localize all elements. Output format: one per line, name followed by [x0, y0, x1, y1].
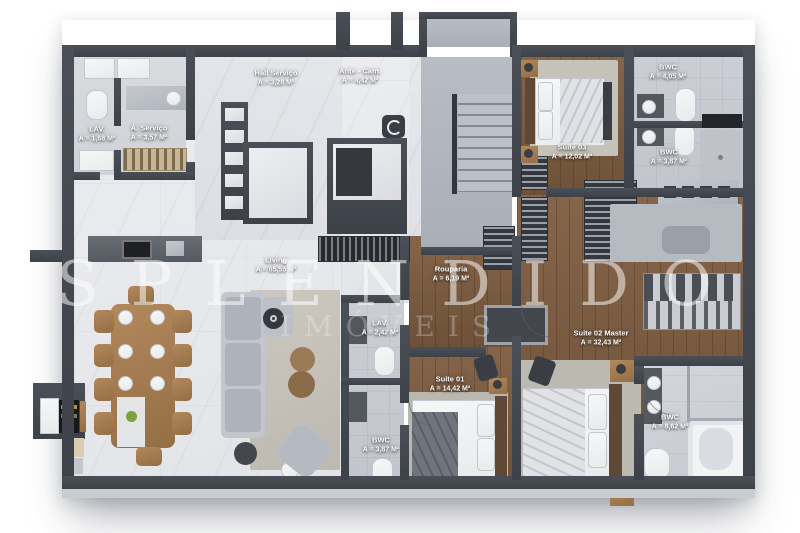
washer	[84, 58, 115, 79]
shower-drain	[718, 155, 723, 160]
dining-chair	[94, 344, 114, 367]
wall-segment	[634, 414, 644, 480]
room-area: A = 12,02 M²	[552, 152, 592, 161]
sink-lav-servico	[79, 150, 114, 171]
room-area: A = 14,42 M²	[430, 384, 470, 393]
master-duvet	[523, 389, 585, 477]
shelf-slot	[225, 196, 244, 209]
room-label-bwc-suite03: BWC A = 3,87 M²	[651, 148, 688, 167]
toilet-lav-servico	[86, 90, 108, 120]
room-name: BWC	[661, 413, 679, 422]
dining-chair	[94, 378, 114, 401]
wall-segment	[634, 366, 644, 384]
wall-segment	[634, 356, 743, 366]
stair-railing	[452, 94, 457, 194]
floor-stair-landing	[427, 19, 510, 47]
room-label-lav-servico: LAV. A = 1,68 M²	[79, 125, 116, 144]
lamp	[524, 149, 533, 158]
pillow	[538, 111, 553, 140]
room-label-ante-cam: Ante - Cam. A = 4,42 M²	[339, 67, 381, 86]
room-area: A = 4,05 M²	[650, 72, 687, 81]
wall-segment	[114, 150, 121, 180]
room-area: A = 3,57 M²	[131, 133, 168, 142]
wall-segment	[186, 45, 195, 140]
wall-segment	[391, 12, 403, 50]
bwc-vanity	[349, 392, 367, 422]
room-label-hall-servico: Hall Serviço A = 3,28 M²	[255, 69, 298, 88]
wall-segment	[62, 45, 420, 57]
pouf	[288, 371, 315, 398]
wall-segment	[546, 188, 634, 197]
room-name: Á. Serviço	[131, 124, 168, 133]
floor-plan: Hall Serviço A = 3,28 M² Ante - Cam. A =…	[0, 0, 800, 533]
wall-segment	[341, 378, 400, 385]
watermark-subtitle: IMÓVEIS	[280, 313, 504, 341]
sofa-cushion	[225, 389, 261, 432]
room-name: BWC	[660, 148, 678, 157]
lamp	[524, 63, 533, 72]
room-label-bwc-suite01: BWC A = 3,87 M²	[363, 436, 400, 455]
door-handle-glyph	[387, 120, 402, 135]
bathtub-basin	[699, 428, 733, 470]
shelf-slot	[225, 108, 244, 121]
terrace-edge	[62, 489, 755, 498]
table-plant	[126, 411, 137, 422]
tv-panel	[603, 82, 612, 140]
pillow	[588, 432, 607, 468]
towel-rack	[80, 401, 86, 432]
hall-closet-block	[327, 138, 407, 234]
bath-partition	[688, 418, 743, 421]
shoe-shelf	[123, 148, 187, 171]
suite03-duvet	[560, 79, 603, 143]
wall-segment	[624, 45, 634, 197]
dining-chair	[172, 378, 192, 401]
dining-chair	[136, 447, 162, 466]
room-name: Ante - Cam.	[339, 67, 381, 76]
shelf-slot	[225, 152, 244, 165]
dining-chair	[172, 412, 192, 435]
room-name: Suite 01	[436, 375, 465, 384]
room-label-area-servico: Á. Serviço A = 3,57 M²	[131, 124, 168, 143]
suite01-headboard	[495, 396, 507, 478]
room-label-bwc-ante: BWC A = 4,05 M²	[650, 63, 687, 82]
wall-segment	[517, 45, 755, 57]
plate	[118, 344, 133, 359]
lamp	[616, 364, 626, 374]
bar-fridge	[40, 398, 59, 434]
wall-segment	[419, 12, 517, 19]
entry-door-icon	[382, 115, 405, 138]
pillow	[538, 82, 553, 111]
room-name: Suite 02 Master	[573, 329, 628, 338]
shelf-slot	[225, 174, 244, 187]
room-name: LAV.	[89, 125, 105, 134]
room-name: BWC	[659, 63, 677, 72]
wall-segment	[409, 347, 486, 357]
wall-segment	[624, 188, 743, 197]
room-area: A = 8,62 M²	[652, 422, 689, 431]
room-area: A = 3,87 M²	[651, 157, 688, 166]
suite03-headboard	[525, 78, 535, 144]
wall-segment	[74, 172, 100, 180]
plate	[150, 376, 165, 391]
laundry-sink	[166, 91, 181, 106]
side-table	[234, 442, 257, 465]
room-name: BWC	[372, 436, 390, 445]
room-label-suite03: Suite 03 A = 12,02 M²	[552, 143, 592, 162]
pillow	[477, 438, 495, 471]
table-runner	[117, 397, 145, 447]
room-label-bwc-master: BWC A = 8,62 M²	[652, 413, 689, 432]
sink	[642, 100, 656, 114]
wall-segment	[118, 172, 194, 180]
plate	[118, 376, 133, 391]
dryer	[117, 58, 150, 79]
wall-segment	[512, 45, 521, 197]
sofa-cushion	[225, 343, 261, 386]
wall-segment	[512, 336, 521, 480]
closet-panel	[336, 148, 372, 196]
toilet	[675, 88, 696, 122]
wall-segment	[114, 78, 121, 126]
sink	[642, 130, 656, 144]
pillow	[477, 404, 495, 437]
room-area: A = 4,42 M²	[339, 76, 381, 85]
room-name: Hall Serviço	[255, 69, 298, 78]
toilet	[374, 346, 395, 376]
lamp	[493, 380, 502, 389]
dining-chair	[94, 412, 114, 435]
wall-niche	[702, 114, 742, 128]
master-headboard	[609, 384, 622, 482]
plate	[150, 344, 165, 359]
room-area: A = 1,68 M²	[79, 134, 116, 143]
dining-chair	[172, 344, 192, 367]
pillow	[588, 394, 607, 430]
room-area: A = 3,28 M²	[255, 78, 298, 87]
closet-top	[249, 148, 307, 218]
stairs	[458, 94, 512, 192]
room-area: A = 3,87 M²	[363, 445, 400, 454]
pouf	[290, 347, 315, 372]
watermark-title: SPLENDIDO	[56, 253, 744, 315]
wall-segment	[336, 12, 350, 50]
room-label-suite02-master: Suite 02 Master A = 32,43 M²	[573, 329, 628, 348]
wall-segment	[400, 425, 409, 480]
room-name: Suite 03	[558, 143, 587, 152]
shelf-slot	[225, 130, 244, 143]
wall-segment	[743, 45, 755, 489]
hall-closet-block	[243, 142, 313, 224]
room-area: A = 32,43 M²	[573, 338, 628, 347]
room-label-suite01: Suite 01 A = 14,42 M²	[430, 375, 470, 394]
